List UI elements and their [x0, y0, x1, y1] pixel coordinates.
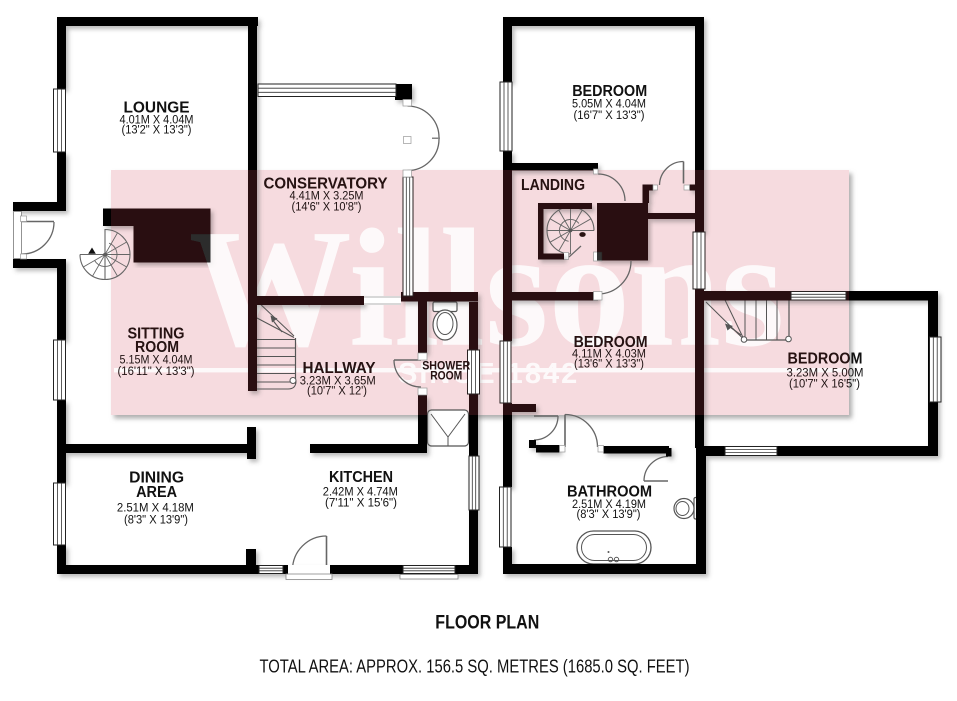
svg-text:(8'3" X 13'9"): (8'3" X 13'9") [124, 513, 188, 527]
svg-text:TOTAL AREA: APPROX. 156.5 SQ.: TOTAL AREA: APPROX. 156.5 SQ. METRES (16… [260, 657, 690, 677]
svg-text:(7'11" X 15'6"): (7'11" X 15'6") [325, 496, 397, 510]
svg-text:(13'2" X 13'3"): (13'2" X 13'3") [122, 123, 192, 137]
svg-text:(8'3" X 13'9"): (8'3" X 13'9") [577, 507, 641, 521]
svg-text:AREA: AREA [136, 484, 177, 501]
svg-text:(16'7" X 13'3"): (16'7" X 13'3") [574, 108, 645, 122]
svg-text:FLOOR PLAN: FLOOR PLAN [435, 612, 539, 634]
svg-text:KITCHEN: KITCHEN [329, 469, 393, 486]
